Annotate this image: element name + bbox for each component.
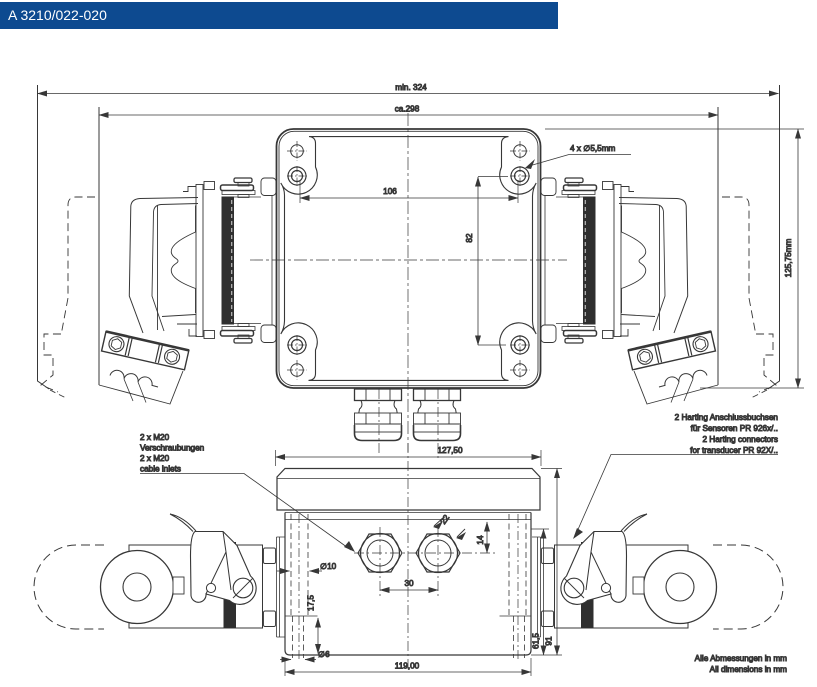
svg-text:cable inlets: cable inlets [140,465,181,474]
svg-text:61,5: 61,5 [532,633,541,649]
svg-text:für Sensoren PR 926x/..: für Sensoren PR 926x/.. [691,424,778,433]
svg-text:106: 106 [383,187,397,196]
svg-text:∅10: ∅10 [320,562,337,571]
svg-text:2 Harting connectors: 2 Harting connectors [702,435,778,444]
svg-text:2 x M20: 2 x M20 [140,454,170,463]
svg-text:ca.298: ca.298 [395,105,420,114]
svg-text:125,75mm: 125,75mm [784,238,793,277]
svg-text:Verschraubungen: Verschraubungen [140,444,205,453]
svg-text:30: 30 [404,579,414,588]
svg-text:127,50: 127,50 [437,446,462,455]
svg-text:119,00: 119,00 [395,662,420,671]
svg-text:82: 82 [465,233,474,243]
svg-text:min. 324: min. 324 [395,83,427,92]
svg-text:for transducer PR 92X/..: for transducer PR 92X/.. [690,446,778,455]
svg-text:2 x M20: 2 x M20 [140,433,170,442]
svg-text:91: 91 [545,636,554,646]
svg-text:2 Harting Anschlussbuchsen: 2 Harting Anschlussbuchsen [675,413,779,422]
svg-text:14: 14 [476,535,485,545]
svg-text:Alle Abmessungen in mm: Alle Abmessungen in mm [695,654,788,663]
svg-text:17,5: 17,5 [307,595,316,611]
svg-text:4 x ∅5,5mm: 4 x ∅5,5mm [570,144,616,153]
svg-text:∅6: ∅6 [318,650,330,659]
svg-text:All dimensions in mm: All dimensions in mm [710,665,788,674]
